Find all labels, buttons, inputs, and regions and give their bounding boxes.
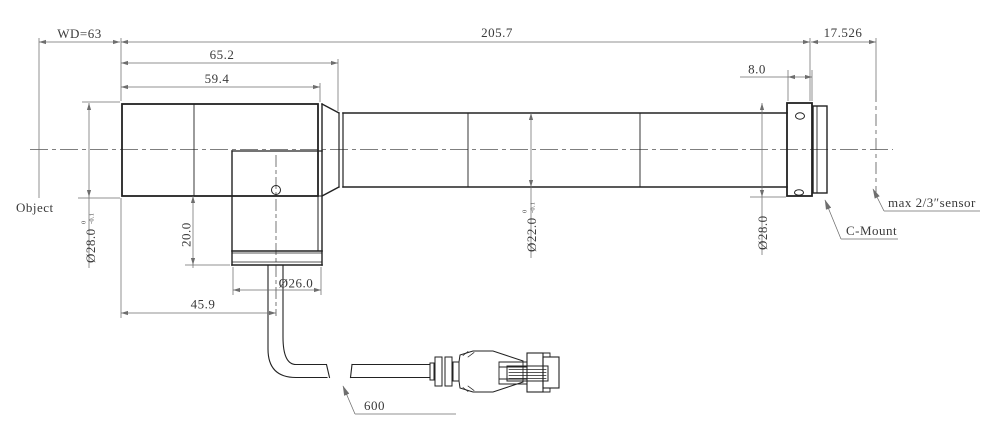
dim-front-diameter-tol-upper: 0 [81,221,88,224]
dim-front-diameter: Ø28.0 0 -0.1 [81,103,99,268]
dim-barrel-diameter-tol-lower: -0.1 [530,202,537,213]
dim-barrel-diameter: Ø22.0 0 -0.1 [522,113,540,258]
dim-mount-diameter: Ø28.0 [755,103,770,255]
dim-front-diameter-text: Ø28.0 [83,228,98,263]
side-body [232,151,322,265]
object-plane-label: Object [16,200,54,215]
cable-straight-segment [351,365,431,378]
dim-front-diameter-tol-lower: -0.1 [89,213,96,224]
taper-section [322,104,343,196]
lens-outline [122,103,827,392]
dim-body-diameter: Ø26.0 [233,276,321,293]
lens-dimension-drawing: WD=63 205.7 17.526 65.2 59.4 [0,0,997,439]
dim-flange-focal-text: 17.526 [824,25,863,40]
dim-body-drop: 20.0 [179,196,196,268]
dim-front-outer-text: 65.2 [210,47,235,62]
sensor-label: max 2/3″sensor [888,195,976,210]
main-barrel [343,113,787,187]
dim-mount-width-text: 8.0 [748,62,766,77]
dim-total-length: 205.7 [121,25,810,44]
dim-front: 59.4 [121,71,320,89]
strain-relief-ribs [430,357,459,386]
dim-flange-focal: 17.526 [811,25,876,44]
connector [430,351,559,392]
dim-barrel-diameter-tol-upper: 0 [522,210,529,213]
dimensions: WD=63 205.7 17.526 65.2 59.4 [39,25,876,315]
dim-mount-diameter-text: Ø28.0 [755,215,770,250]
dim-total-length-text: 205.7 [481,25,513,40]
flange-screw-hole-top [796,113,805,119]
dim-body-diameter-text: Ø26.0 [279,276,314,291]
cable-length-text: 600 [364,398,385,413]
plug-body [499,353,559,392]
dim-cable-offset-text: 45.9 [191,297,216,312]
drawing-svg: WD=63 205.7 17.526 65.2 59.4 [0,0,997,439]
flange-screw-hole-bottom [795,190,804,196]
dim-wd-text: WD=63 [57,26,102,41]
dim-body-drop-text: 20.0 [179,222,194,247]
dim-front-outer: 65.2 [121,47,338,65]
dim-barrel-diameter-text: Ø22.0 [524,217,539,252]
sensor-callout: max 2/3″sensor [873,189,980,211]
dim-wd: WD=63 [39,26,120,44]
dim-cable-offset: 45.9 [121,297,276,316]
dim-front-text: 59.4 [205,71,230,86]
cable-break-end [327,365,330,378]
centerlines [30,90,893,316]
front-barrel [122,104,322,196]
callouts: Object max 2/3″sensor C-Mount 600 [16,189,980,414]
extension-lines [39,38,876,318]
connector-boot [459,351,523,392]
c-mount-label: C-Mount [846,223,897,238]
cable-length-callout: 600 [343,386,456,414]
dim-mount-width: 8.0 [740,62,812,80]
